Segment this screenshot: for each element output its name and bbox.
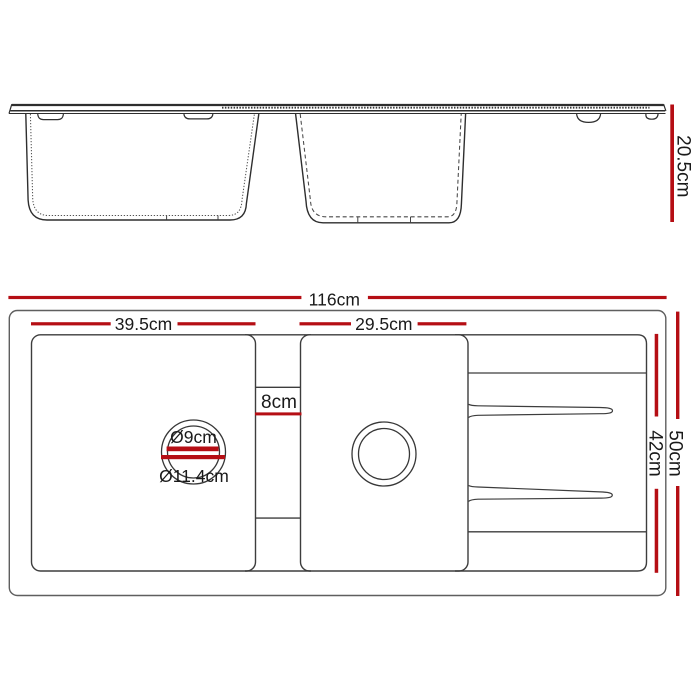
- svg-text:50cm: 50cm: [665, 430, 686, 476]
- svg-text:Ø11.4cm: Ø11.4cm: [159, 466, 229, 486]
- svg-text:Ø9cm: Ø9cm: [170, 427, 217, 447]
- svg-text:42cm: 42cm: [644, 430, 665, 476]
- svg-text:116cm: 116cm: [309, 289, 360, 309]
- svg-text:20.5cm: 20.5cm: [673, 135, 694, 197]
- svg-text:39.5cm: 39.5cm: [115, 314, 172, 334]
- svg-text:8cm: 8cm: [261, 392, 297, 413]
- svg-text:29.5cm: 29.5cm: [355, 314, 412, 334]
